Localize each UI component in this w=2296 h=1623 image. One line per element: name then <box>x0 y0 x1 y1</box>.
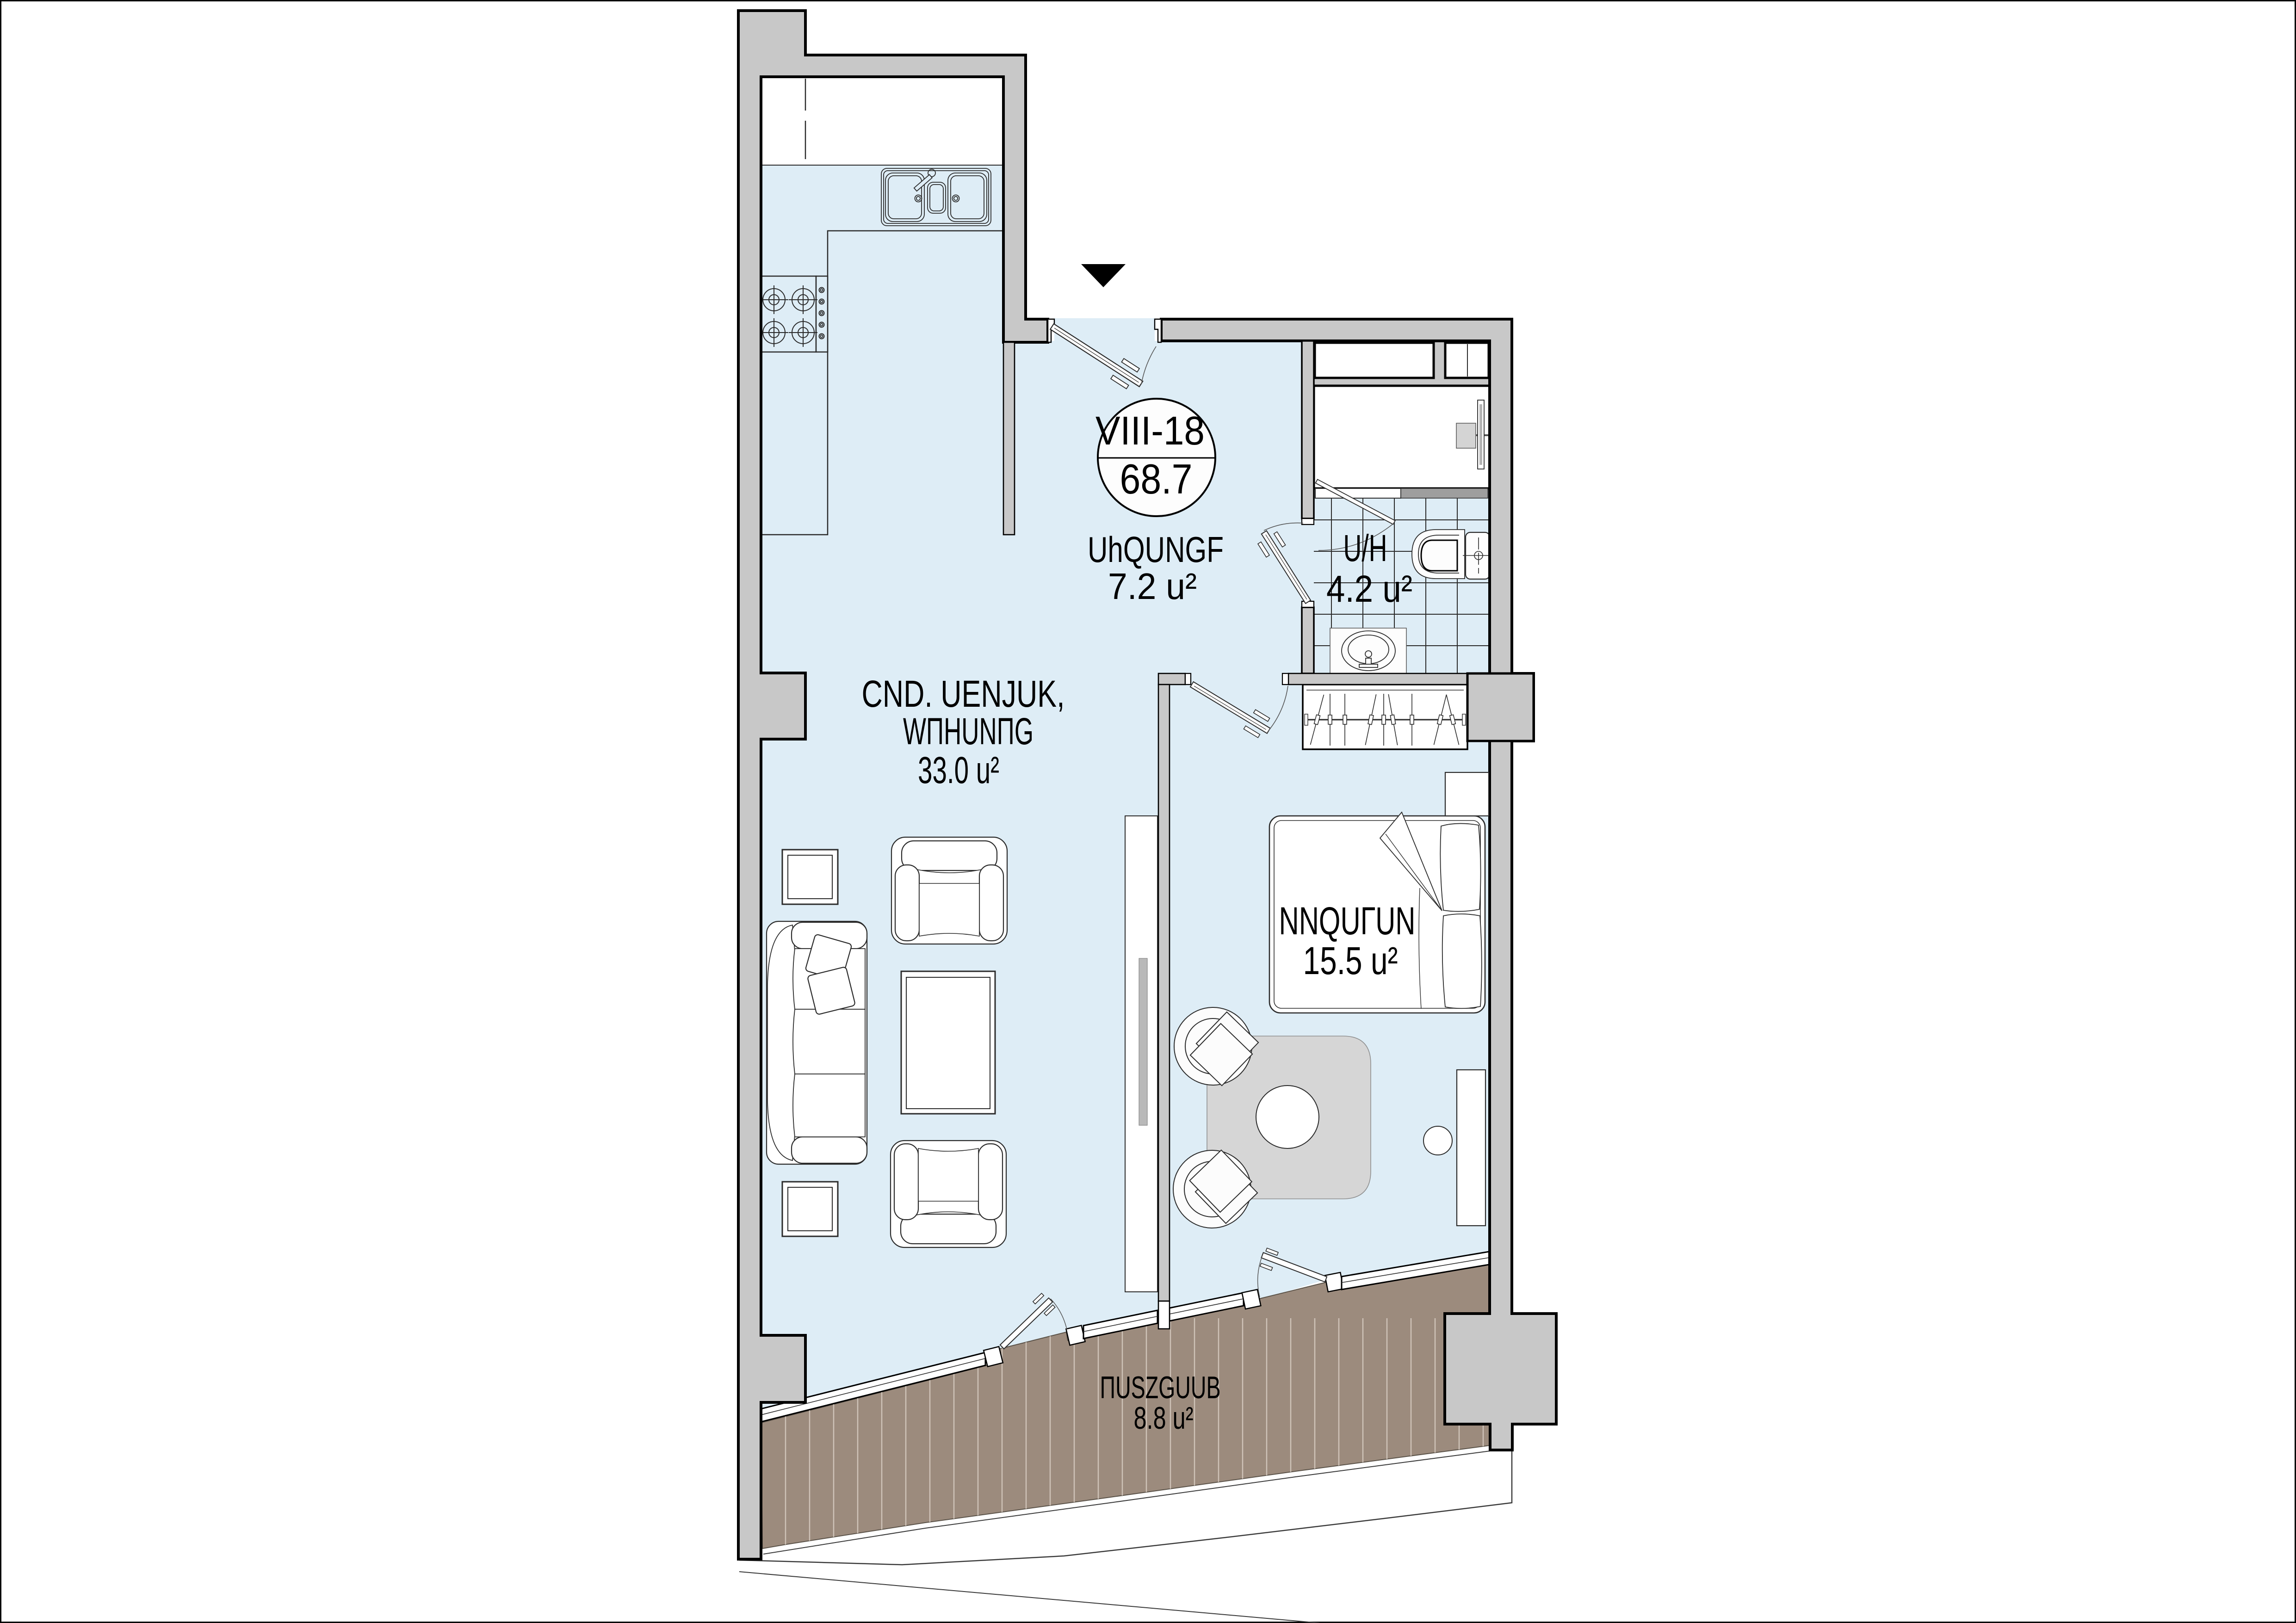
svg-text:15.5 u²: 15.5 u² <box>1303 939 1398 982</box>
svg-text:4.2 u²: 4.2 u² <box>1326 568 1412 610</box>
svg-text:68.7: 68.7 <box>1120 456 1193 503</box>
svg-text:NNQUГUN: NNQUГUN <box>1279 899 1416 943</box>
svg-text:U/H: U/H <box>1343 527 1387 569</box>
svg-text:CND. UENJUK,: CND. UENJUK, <box>862 673 1065 715</box>
svg-text:7.2 u²: 7.2 u² <box>1108 566 1197 607</box>
svg-text:8.8 u²: 8.8 u² <box>1134 1401 1194 1436</box>
svg-text:ΠUSZGUUB: ΠUSZGUUB <box>1100 1370 1221 1405</box>
svg-text:VIII-18: VIII-18 <box>1095 408 1205 453</box>
svg-text:33.0 u²: 33.0 u² <box>918 749 999 791</box>
svg-text:UhQUNGF: UhQUNGF <box>1088 529 1224 570</box>
svg-text:WΠHUNΠG: WΠHUNΠG <box>903 710 1034 753</box>
